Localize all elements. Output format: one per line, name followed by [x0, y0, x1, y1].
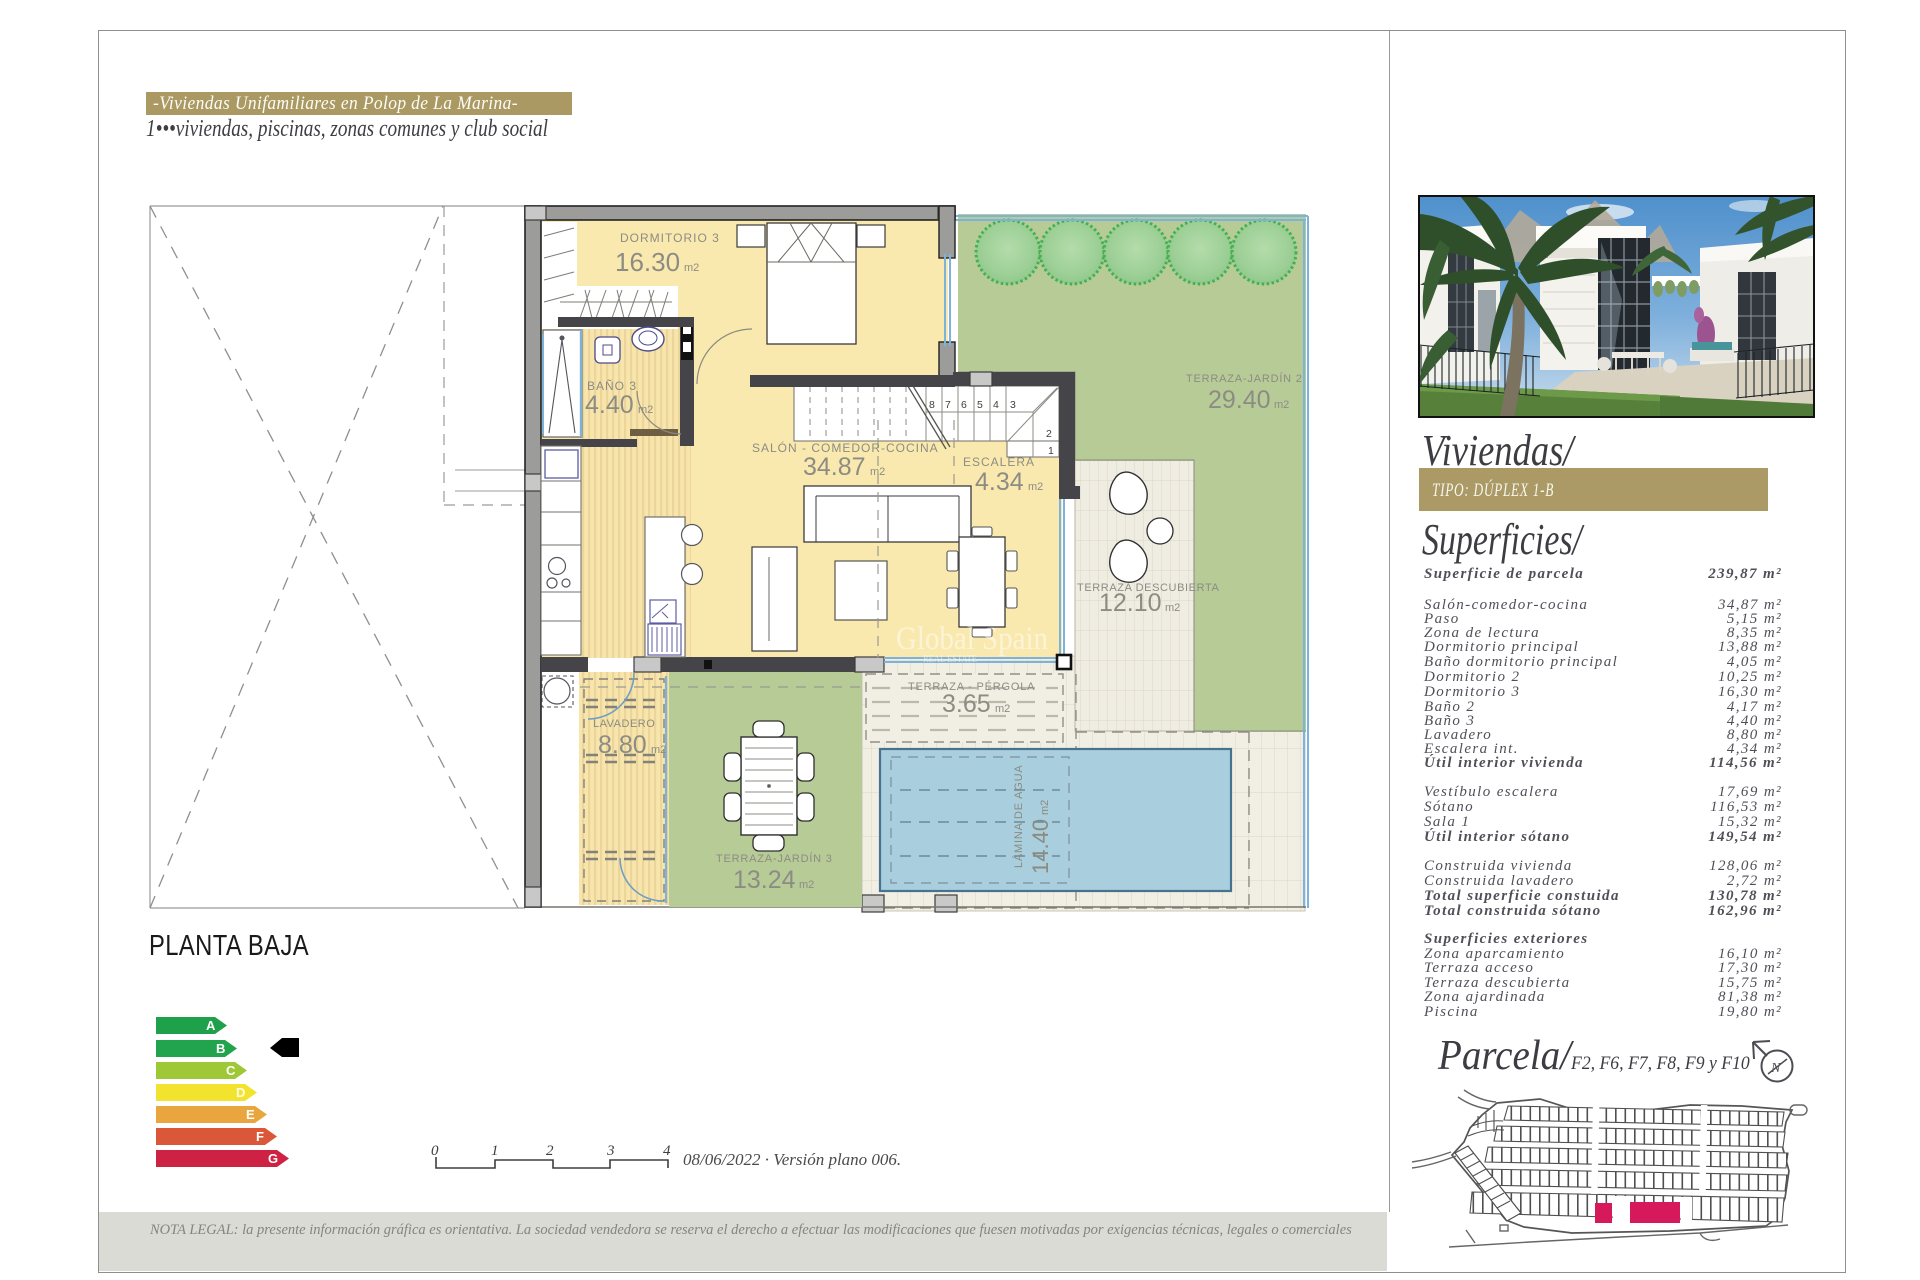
svg-text:5: 5 — [977, 399, 983, 411]
svg-text:G: G — [268, 1151, 278, 1166]
svg-text:m2: m2 — [651, 744, 666, 756]
svg-text:16.30: 16.30 — [615, 247, 680, 277]
svg-text:DORMITORIO 3: DORMITORIO 3 — [620, 231, 720, 245]
svg-text:2: 2 — [1046, 428, 1052, 440]
svg-text:m2: m2 — [870, 466, 885, 478]
svg-text:4.34: 4.34 — [975, 468, 1024, 496]
svg-text:14.40: 14.40 — [1028, 819, 1053, 874]
svg-text:N: N — [1770, 1061, 1781, 1076]
svg-text:Global Spain: Global Spain — [896, 621, 1048, 657]
svg-text:TERRAZA-JARDÍN 3: TERRAZA-JARDÍN 3 — [716, 852, 833, 865]
svg-text:3: 3 — [1010, 399, 1016, 411]
svg-text:3: 3 — [606, 1143, 615, 1159]
svg-text:F: F — [256, 1129, 264, 1144]
svg-text:A: A — [206, 1018, 216, 1033]
svg-text:m2: m2 — [638, 404, 653, 416]
svg-text:08/06/2022 · Versión plano 006: 08/06/2022 · Versión plano 006. — [683, 1150, 901, 1169]
svg-text:REAL ESTATE: REAL ESTATE — [923, 654, 977, 665]
svg-text:m2: m2 — [1274, 399, 1289, 411]
svg-text:29.40: 29.40 — [1208, 386, 1271, 414]
svg-text:LAVADERO: LAVADERO — [593, 718, 655, 730]
svg-text:TERRAZA-JARDÍN 2: TERRAZA-JARDÍN 2 — [1186, 372, 1303, 385]
svg-text:1: 1 — [1048, 445, 1054, 457]
svg-text:0: 0 — [431, 1143, 439, 1159]
svg-text:34.87: 34.87 — [803, 453, 866, 481]
svg-text:8.80: 8.80 — [598, 731, 647, 759]
svg-text:ESCALERA: ESCALERA — [963, 455, 1035, 469]
svg-text:12.10: 12.10 — [1099, 589, 1162, 617]
svg-text:E: E — [246, 1107, 255, 1122]
svg-text:4: 4 — [993, 399, 999, 411]
svg-text:LÁMINA DE AGUA: LÁMINA DE AGUA — [1012, 764, 1025, 868]
svg-text:7: 7 — [945, 399, 951, 411]
svg-text:m2: m2 — [1039, 800, 1051, 815]
svg-text:m2: m2 — [995, 703, 1010, 715]
svg-text:8: 8 — [929, 399, 935, 411]
svg-text:13.24: 13.24 — [733, 866, 796, 894]
svg-text:m2: m2 — [1165, 602, 1180, 614]
svg-text:D: D — [236, 1085, 245, 1100]
svg-text:2: 2 — [546, 1143, 554, 1159]
svg-text:4.40: 4.40 — [585, 391, 634, 419]
svg-text:m2: m2 — [684, 262, 699, 274]
svg-text:B: B — [216, 1041, 225, 1056]
svg-text:6: 6 — [961, 399, 967, 411]
svg-text:C: C — [226, 1063, 236, 1078]
svg-text:4: 4 — [663, 1143, 671, 1159]
svg-text:m2: m2 — [799, 879, 814, 891]
svg-text:m2: m2 — [1028, 481, 1043, 493]
svg-text:3.65: 3.65 — [942, 690, 991, 718]
svg-text:1: 1 — [491, 1143, 499, 1159]
